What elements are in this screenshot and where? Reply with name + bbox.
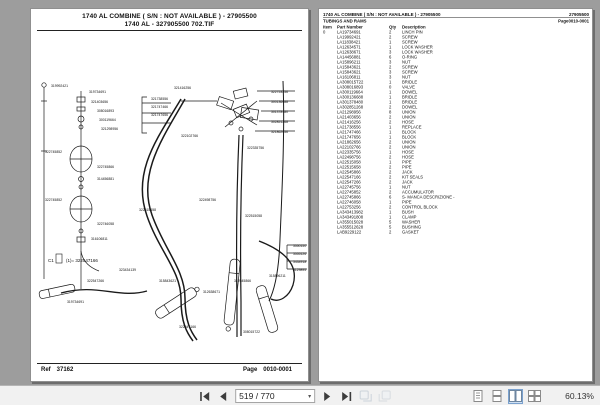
cell-part-number: LAB9229122 xyxy=(337,230,389,235)
diagram-label: 321747466 xyxy=(151,105,168,109)
legend-note: (1)= 322547166 xyxy=(66,258,98,263)
prev-page-button[interactable] xyxy=(216,389,230,403)
next-view-button[interactable] xyxy=(377,389,391,403)
diagram-label: 308016893 xyxy=(97,109,114,113)
diagram-label: 300119664 xyxy=(99,118,116,122)
single-page-view-icon[interactable] xyxy=(470,389,485,404)
diagram-label: 323434139 xyxy=(119,268,136,272)
diagram-label: 322515058 xyxy=(245,214,262,218)
left-page-header: 1740 AL COMBINE ( S/N : NOT AVAILABLE ) … xyxy=(31,9,308,28)
diagram-label: 322746058 xyxy=(97,222,114,226)
diagram-label: 322498756 xyxy=(199,198,216,202)
diagram-label: 314456881 xyxy=(97,177,114,181)
diagram-label: 319734691 xyxy=(67,300,84,304)
footer-rule xyxy=(37,363,302,364)
diagram-label: 316106811 xyxy=(91,237,108,241)
right-page-title: 1740 AL COMBINE ( S/N : NOT AVAILABLE ) … xyxy=(323,12,440,17)
viewer-toolbar: 519 / 770 ▾ 60.13% xyxy=(0,385,600,405)
first-page-button[interactable] xyxy=(197,389,211,403)
diagram-label: 322545866 xyxy=(234,279,251,283)
diagram-label: 3129895 xyxy=(293,268,306,272)
diagram-label: 322335756 xyxy=(247,146,264,150)
diagram-label: 312638671 xyxy=(203,290,220,294)
right-page-header: 1740 AL COMBINE ( S/N : NOT AVAILABLE ) … xyxy=(319,9,593,17)
parts-diagram: C1 (1)= 322547166 3199924213197346913214… xyxy=(31,41,309,359)
section-title: TUBINGS AND RAMS xyxy=(323,19,367,24)
diagram-label: 322745852 xyxy=(45,150,62,154)
footer-page: Page0010-0001 xyxy=(243,367,298,373)
next-page-button[interactable] xyxy=(320,389,334,403)
continuous-view-icon[interactable] xyxy=(489,389,504,404)
zoom-level[interactable]: 60.13% xyxy=(565,386,594,405)
document-canvas: 1740 AL COMBINE ( S/N : NOT AVAILABLE ) … xyxy=(0,0,600,385)
legend-prefix: C1 xyxy=(48,258,54,263)
diagram-label: 302851268 xyxy=(271,120,288,124)
diagram-label: 322753256 xyxy=(271,90,288,94)
diagram-label: 322102766 xyxy=(181,134,198,138)
page-number-input[interactable]: 519 / 770 ▾ xyxy=(235,389,315,403)
table-row: LAB92291222GASKET xyxy=(323,230,590,235)
cell-description: GASKET xyxy=(402,230,590,235)
continuous-facing-view-icon[interactable] xyxy=(527,389,542,404)
diagram-label: 308015722 xyxy=(243,330,260,334)
diagram-label: 322547166 xyxy=(179,325,196,329)
diagram-label: 322745852 xyxy=(45,198,62,202)
footer-ref: Ref37162 xyxy=(41,367,79,373)
diagram-label: 301378480 xyxy=(271,110,288,114)
diagram-label: 319734691 xyxy=(89,90,106,94)
diagram-label: 321298956 xyxy=(101,127,118,131)
page-label: Page xyxy=(243,367,257,373)
ref-value: 37162 xyxy=(57,367,74,373)
diagram-label: 319992421 xyxy=(51,84,68,88)
prev-view-button[interactable] xyxy=(358,389,372,403)
diagram-label: 322745866 xyxy=(97,165,114,169)
ref-label: Ref xyxy=(41,367,51,373)
left-page-title-line1: 1740 AL COMBINE ( S/N : NOT AVAILABLE ) … xyxy=(31,13,308,21)
cell-item xyxy=(323,230,337,235)
diagram-label: 322515658 xyxy=(139,208,156,212)
left-page-title-line2: 1740 AL - 327905500 702.TIF xyxy=(31,21,308,29)
cell-qty: 2 xyxy=(389,230,402,235)
diagram-label: 315843621 xyxy=(159,279,176,283)
diagram-label: 321862656 xyxy=(271,130,288,134)
diagram-label: 322547266 xyxy=(87,279,104,283)
page-layout-controls xyxy=(470,386,542,405)
diagram-label: 300136688 xyxy=(271,100,288,104)
page-navigation: 519 / 770 ▾ xyxy=(197,386,391,405)
facing-view-icon[interactable] xyxy=(508,389,523,404)
page-number: Page0010-0001 xyxy=(558,19,589,24)
right-page-serial: 27905500 xyxy=(569,12,589,17)
chevron-down-icon[interactable]: ▾ xyxy=(308,393,311,400)
diagram-label: 321403656 xyxy=(91,100,108,104)
left-page: 1740 AL COMBINE ( S/N : NOT AVAILABLE ) … xyxy=(30,8,309,382)
diagram-label: 321747656 xyxy=(151,113,168,117)
diagram-label: 3550150 xyxy=(293,244,306,248)
parts-table: 0LA197346912LINCH PINLA199924212SCREWLA1… xyxy=(319,30,593,235)
header-rule xyxy=(37,30,302,31)
diagram-legend: C1 (1)= 322547166 xyxy=(48,254,98,263)
left-page-footer: Ref37162 Page0010-0001 xyxy=(31,363,308,373)
last-page-button[interactable] xyxy=(339,389,353,403)
page-value: 0010-0001 xyxy=(263,367,292,373)
diagram-label: 321416256 xyxy=(174,86,191,90)
right-page: 1740 AL COMBINE ( S/N : NOT AVAILABLE ) … xyxy=(318,8,593,382)
diagram-label: 321738556 xyxy=(151,97,168,101)
diagram-label: 315896211 xyxy=(269,274,286,278)
page-field-value: 519 / 770 xyxy=(239,391,308,401)
diagram-label: 3555126 xyxy=(293,252,306,256)
diagram-label: 3434918 xyxy=(293,260,306,264)
